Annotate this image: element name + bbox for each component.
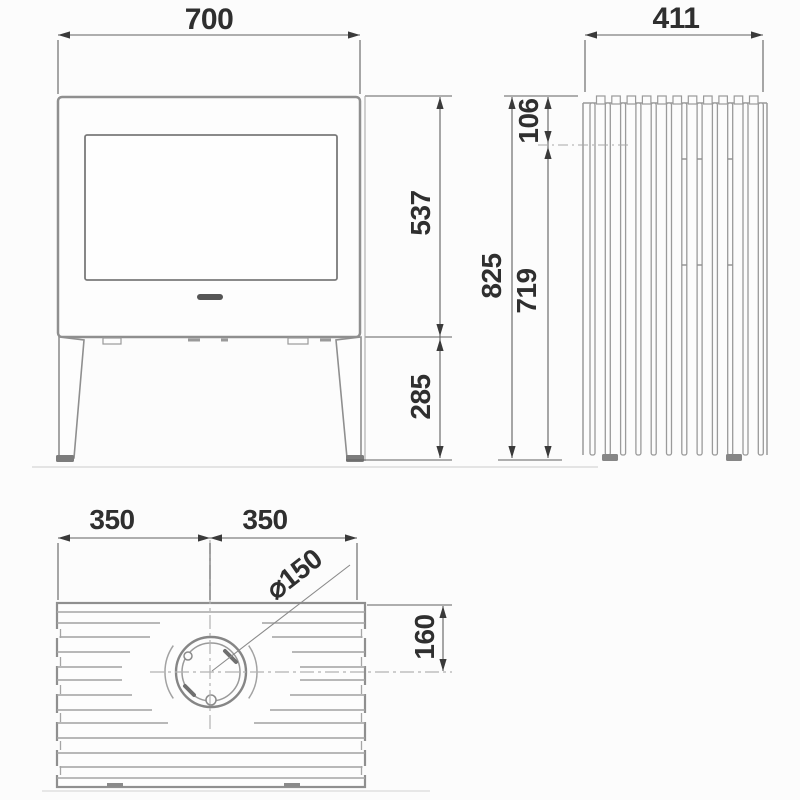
edge-notch — [55, 713, 60, 722]
side-slat-panel — [590, 103, 763, 455]
dim-label-front-width: 700 — [185, 3, 234, 37]
side-slat — [667, 103, 672, 455]
dim-arrow — [585, 31, 597, 38]
dim-label-top-offset: 106 — [513, 98, 545, 143]
dim-label-flue-offset: 160 — [409, 614, 441, 659]
dim-label-body-height: 537 — [405, 190, 437, 235]
side-slat — [697, 103, 702, 455]
brand-logo — [197, 294, 223, 300]
castellation-bump — [719, 96, 728, 104]
glass-door-window — [85, 135, 337, 280]
front-right-foot — [346, 455, 364, 462]
dim-arrow — [210, 534, 222, 541]
dim-arrow — [58, 534, 70, 541]
side-slat — [621, 103, 626, 455]
edge-tick — [107, 783, 123, 787]
side-slat — [605, 103, 610, 455]
dim-arrow — [751, 31, 763, 38]
dim-arrow — [436, 339, 443, 351]
edge-notch — [55, 741, 60, 750]
side-slat — [651, 103, 656, 455]
castellation-bump — [704, 96, 713, 104]
top-view — [55, 540, 453, 787]
castellation-bump — [750, 96, 759, 104]
edge-notch — [363, 766, 368, 775]
side-top-castellation — [597, 96, 759, 104]
side-view — [583, 96, 767, 461]
dim-arrow — [436, 97, 443, 109]
castellation-bump — [688, 96, 697, 104]
dim-arrow — [508, 446, 515, 458]
castellation-bump — [627, 96, 636, 104]
drawing-canvas — [0, 0, 800, 800]
dim-arrow — [345, 534, 357, 541]
dim-arrow — [544, 97, 551, 109]
dim-arrow — [439, 659, 446, 671]
dim-arrow — [544, 446, 551, 458]
side-slat — [590, 103, 595, 455]
dim-label-total-height: 825 — [476, 253, 508, 298]
side-back-foot — [726, 454, 742, 461]
edge-notch — [55, 685, 60, 694]
front-left-leg — [59, 337, 84, 458]
castellation-bump — [673, 96, 682, 104]
castellation-bump — [597, 96, 606, 104]
edge-notch — [55, 629, 60, 638]
dim-arrow — [58, 31, 70, 38]
dim-label-lower-height: 719 — [511, 268, 543, 313]
front-right-leg — [336, 337, 361, 458]
side-slat — [743, 103, 748, 455]
edge-notch — [363, 685, 368, 694]
dim-arrow — [544, 131, 551, 143]
dim-arrow — [436, 446, 443, 458]
base-latch — [288, 338, 308, 344]
side-slat — [636, 103, 641, 455]
castellation-bump — [658, 96, 667, 104]
front-left-foot — [56, 455, 74, 462]
dim-label-right-half-width: 350 — [242, 504, 287, 536]
edge-notch — [363, 629, 368, 638]
edge-notch — [363, 713, 368, 722]
edge-notch — [363, 657, 368, 666]
edge-notch — [55, 657, 60, 666]
castellation-bump — [734, 96, 743, 104]
side-front-foot — [602, 454, 618, 461]
side-slat — [758, 103, 763, 455]
dim-label-left-half-width: 350 — [89, 504, 134, 536]
dim-arrow — [544, 147, 551, 159]
dim-arrow — [436, 324, 443, 336]
dim-label-side-depth: 411 — [653, 2, 700, 36]
dim-arrow — [198, 534, 210, 541]
side-handle-slots — [682, 159, 733, 265]
castellation-bump — [642, 96, 651, 104]
stove-dimension-drawing: 700 411 537 285 825 719 106 350 350 ⌀150… — [0, 0, 800, 800]
front-view — [56, 97, 364, 462]
edge-notch — [363, 741, 368, 750]
edge-tick — [284, 783, 300, 787]
flue-notch — [206, 695, 216, 705]
castellation-bump — [612, 96, 621, 104]
flue-lug — [184, 652, 192, 660]
base-latch — [103, 338, 121, 344]
side-slat — [682, 103, 687, 455]
dim-label-leg-height: 285 — [405, 374, 437, 419]
edge-notch — [55, 766, 60, 775]
dim-arrow — [348, 31, 360, 38]
side-slat — [728, 103, 733, 455]
side-slat — [712, 103, 717, 455]
